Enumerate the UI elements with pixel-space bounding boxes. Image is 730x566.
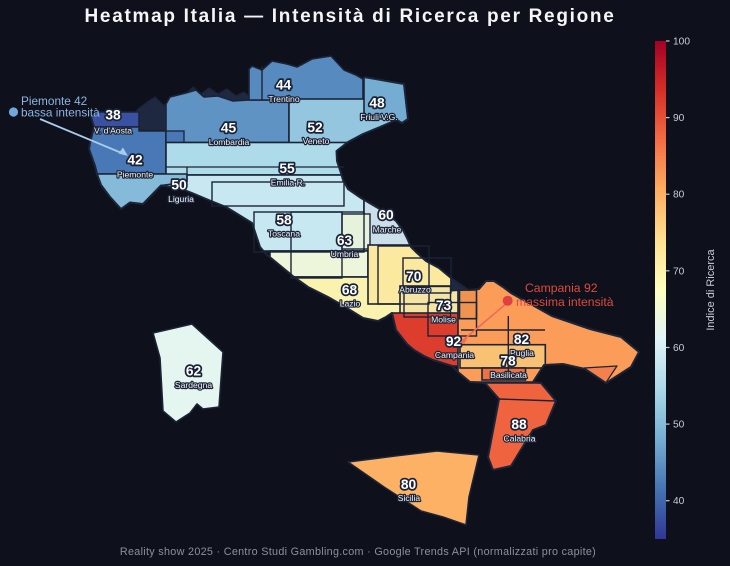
svg-text:90: 90 <box>673 113 685 124</box>
svg-text:50: 50 <box>171 178 187 193</box>
svg-text:70: 70 <box>406 269 422 284</box>
svg-text:Trentino: Trentino <box>268 94 299 104</box>
svg-text:Basilicata: Basilicata <box>490 370 527 380</box>
svg-text:Abruzzo: Abruzzo <box>399 285 431 295</box>
svg-text:bassa intensità: bassa intensità <box>21 106 100 120</box>
svg-text:Piemonte: Piemonte <box>117 170 154 180</box>
svg-text:Veneto: Veneto <box>303 136 330 146</box>
svg-text:50: 50 <box>673 420 685 431</box>
svg-text:70: 70 <box>673 266 685 277</box>
svg-text:Sicilia: Sicilia <box>398 493 421 503</box>
svg-text:Heatmap Italia — Intensità di: Heatmap Italia — Intensità di Ricerca pe… <box>85 6 616 27</box>
svg-text:Sardegna: Sardegna <box>175 380 212 390</box>
svg-text:Indice di Ricerca: Indice di Ricerca <box>705 248 717 330</box>
svg-text:Toscana: Toscana <box>268 229 300 239</box>
svg-text:Campania: Campania <box>435 350 474 360</box>
svg-text:92: 92 <box>446 334 462 349</box>
svg-text:44: 44 <box>276 78 292 93</box>
svg-text:42: 42 <box>127 153 143 168</box>
svg-text:60: 60 <box>378 208 394 223</box>
svg-text:68: 68 <box>342 283 358 298</box>
svg-text:88: 88 <box>511 417 527 432</box>
svg-text:40: 40 <box>673 496 685 507</box>
svg-text:Lombardia: Lombardia <box>209 137 250 147</box>
svg-text:55: 55 <box>279 161 295 176</box>
svg-text:Calabria: Calabria <box>503 434 535 444</box>
svg-text:Campania 92: Campania 92 <box>525 281 598 295</box>
svg-text:Lazio: Lazio <box>340 299 361 309</box>
svg-text:78: 78 <box>500 354 516 369</box>
svg-text:Liguria: Liguria <box>168 194 194 204</box>
svg-text:63: 63 <box>337 233 353 248</box>
svg-text:Friuli V.G.: Friuli V.G. <box>360 112 397 122</box>
svg-text:73: 73 <box>436 298 452 313</box>
svg-text:Reality show 2025 · Centro Stu: Reality show 2025 · Centro Studi Gamblin… <box>120 546 596 558</box>
svg-text:Umbria: Umbria <box>331 249 359 259</box>
svg-text:massima intensità: massima intensità <box>516 295 614 309</box>
svg-text:82: 82 <box>514 332 530 347</box>
svg-text:100: 100 <box>673 37 690 48</box>
svg-text:60: 60 <box>673 343 685 354</box>
svg-text:80: 80 <box>401 477 417 492</box>
svg-text:62: 62 <box>186 364 202 379</box>
svg-text:Molise: Molise <box>431 315 456 325</box>
svg-text:38: 38 <box>105 108 121 123</box>
svg-text:58: 58 <box>276 213 292 228</box>
svg-text:Marche: Marche <box>373 225 402 235</box>
svg-text:45: 45 <box>221 121 237 136</box>
svg-text:80: 80 <box>673 190 685 201</box>
svg-text:Emilia R.: Emilia R. <box>271 178 305 188</box>
svg-text:52: 52 <box>307 120 323 135</box>
svg-text:48: 48 <box>369 96 385 111</box>
svg-text:V. d'Aosta: V. d'Aosta <box>94 126 132 136</box>
